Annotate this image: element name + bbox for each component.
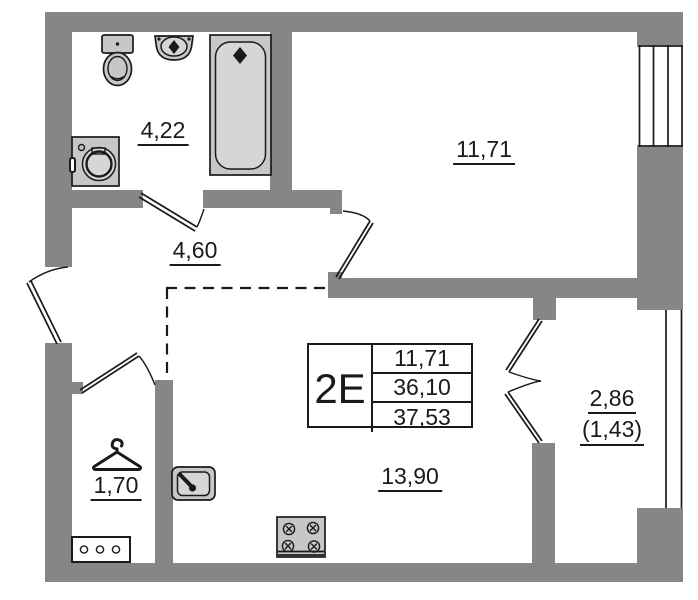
closet-area-label: 1,70	[91, 472, 142, 501]
unit-area-row: 36,10	[373, 374, 471, 403]
unit-total-area-row: 37,53	[373, 403, 471, 432]
balcony-window-icon	[666, 310, 682, 508]
shoe-cabinet-icon	[72, 537, 130, 562]
balcony-area-label: 2,86 (1,43)	[580, 385, 644, 446]
bedroom-door-icon	[336, 211, 373, 279]
toilet-icon	[102, 35, 133, 86]
balcony-french-door-icon	[505, 319, 542, 443]
entrance-door-icon	[27, 267, 68, 344]
washing-machine-icon	[70, 137, 119, 186]
wall-left-upper	[45, 12, 72, 267]
wall-bathroom-bottom-right	[203, 190, 342, 208]
wall-bottom-right-corner	[637, 508, 683, 582]
hallway-area-label: 4,60	[170, 237, 221, 266]
stove-icon	[277, 517, 325, 557]
wall-bedroom-bottom	[328, 278, 638, 298]
balcony-area-value: 2,86	[588, 385, 637, 414]
kitchen-living-area-label: 13,90	[378, 463, 442, 492]
wall-closet-right	[155, 380, 173, 563]
unit-living-area-row: 11,71	[373, 345, 471, 374]
unit-code: 2E	[309, 345, 373, 432]
wall-balcony-lower	[532, 443, 555, 563]
wall-bathroom-bottom-left	[72, 190, 143, 208]
wall-sink-icon	[155, 36, 193, 60]
kitchen-sink-icon	[172, 467, 215, 500]
bathroom-door-icon	[139, 193, 204, 231]
wall-top	[45, 12, 683, 32]
bedroom-area-label: 11,71	[453, 136, 515, 165]
closet-door-icon	[80, 353, 155, 393]
floor-plan: 4,22 4,60 11,71 1,70 13,90 2,86 (1,43) 2…	[0, 0, 698, 600]
wall-bedroom-door-step	[330, 208, 342, 214]
unit-spec-rows: 11,71 36,10 37,53	[373, 345, 471, 432]
bedroom-window-icon	[638, 45, 684, 147]
wall-top-right-corner	[637, 12, 683, 45]
unit-spec-table: 2E 11,71 36,10 37,53	[307, 343, 473, 428]
wall-bathroom-bedroom	[270, 32, 292, 208]
balcony-area-secondary-value: (1,43)	[580, 416, 644, 445]
wall-right-middle	[637, 147, 683, 310]
wall-closet-door-nib	[72, 382, 83, 394]
wall-bottom	[45, 563, 683, 582]
bathroom-area-label: 4,22	[138, 117, 189, 146]
wall-balcony-jamb-top	[533, 298, 556, 320]
floor-plan-drawing	[0, 0, 698, 600]
wall-left-lower	[45, 343, 72, 582]
bathtub-icon	[210, 35, 271, 175]
kitchen-zone-dashed-line	[166, 288, 330, 380]
wardrobe-hanger-icon	[94, 440, 141, 470]
